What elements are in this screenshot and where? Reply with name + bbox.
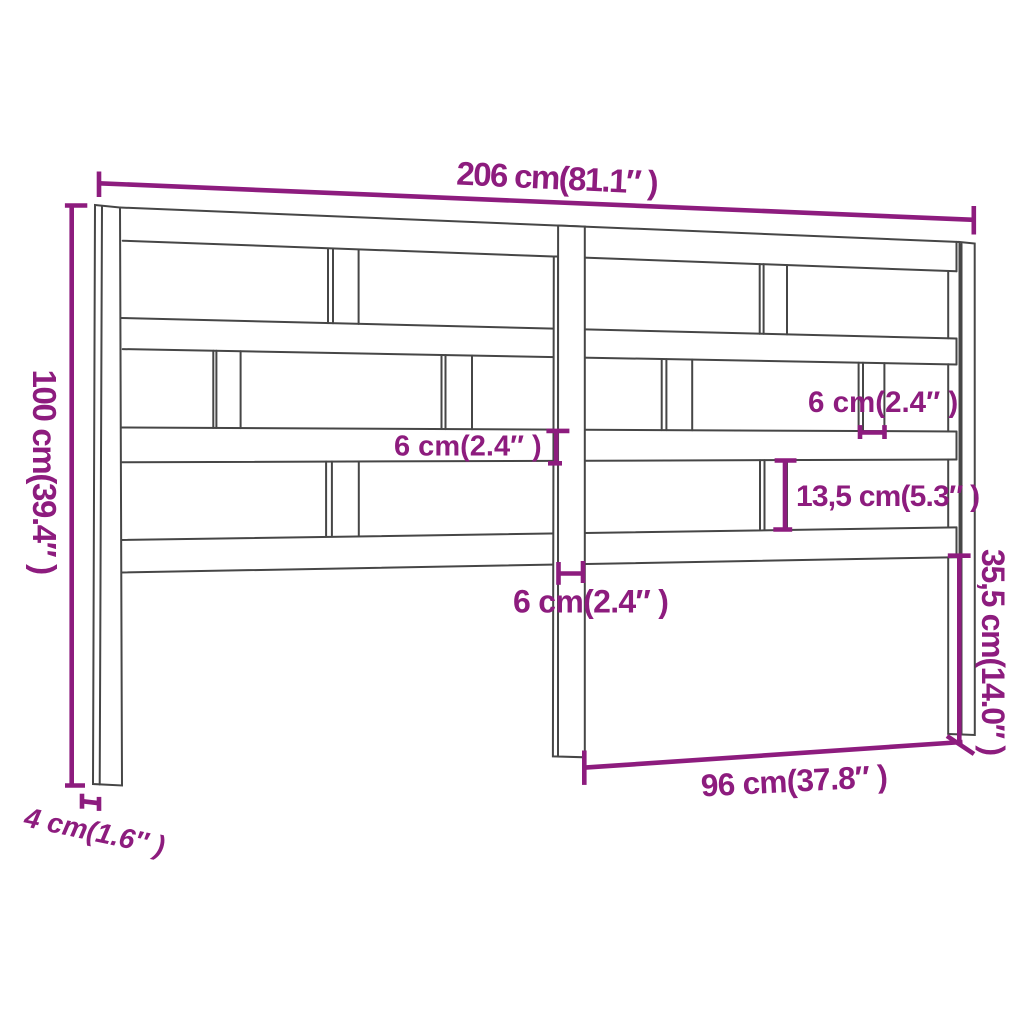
svg-text:96 cm(37.8″ ): 96 cm(37.8″ ) <box>700 758 888 804</box>
svg-text:100 cm(39.4″ ): 100 cm(39.4″ ) <box>26 370 63 575</box>
svg-text:35,5 cm(14.0″ ): 35,5 cm(14.0″ ) <box>975 549 1011 755</box>
svg-text:13,5 cm(5.3″ ): 13,5 cm(5.3″ ) <box>796 480 979 513</box>
svg-text:6 cm(2.4″ ): 6 cm(2.4″ ) <box>394 431 542 463</box>
svg-text:6 cm(2.4″ ): 6 cm(2.4″ ) <box>808 386 958 419</box>
svg-text:4 cm(1.6″ ): 4 cm(1.6″ ) <box>21 801 168 861</box>
svg-text:6 cm(2.4″ ): 6 cm(2.4″ ) <box>513 584 668 620</box>
svg-text:206 cm(81.1″ ): 206 cm(81.1″ ) <box>456 155 659 201</box>
